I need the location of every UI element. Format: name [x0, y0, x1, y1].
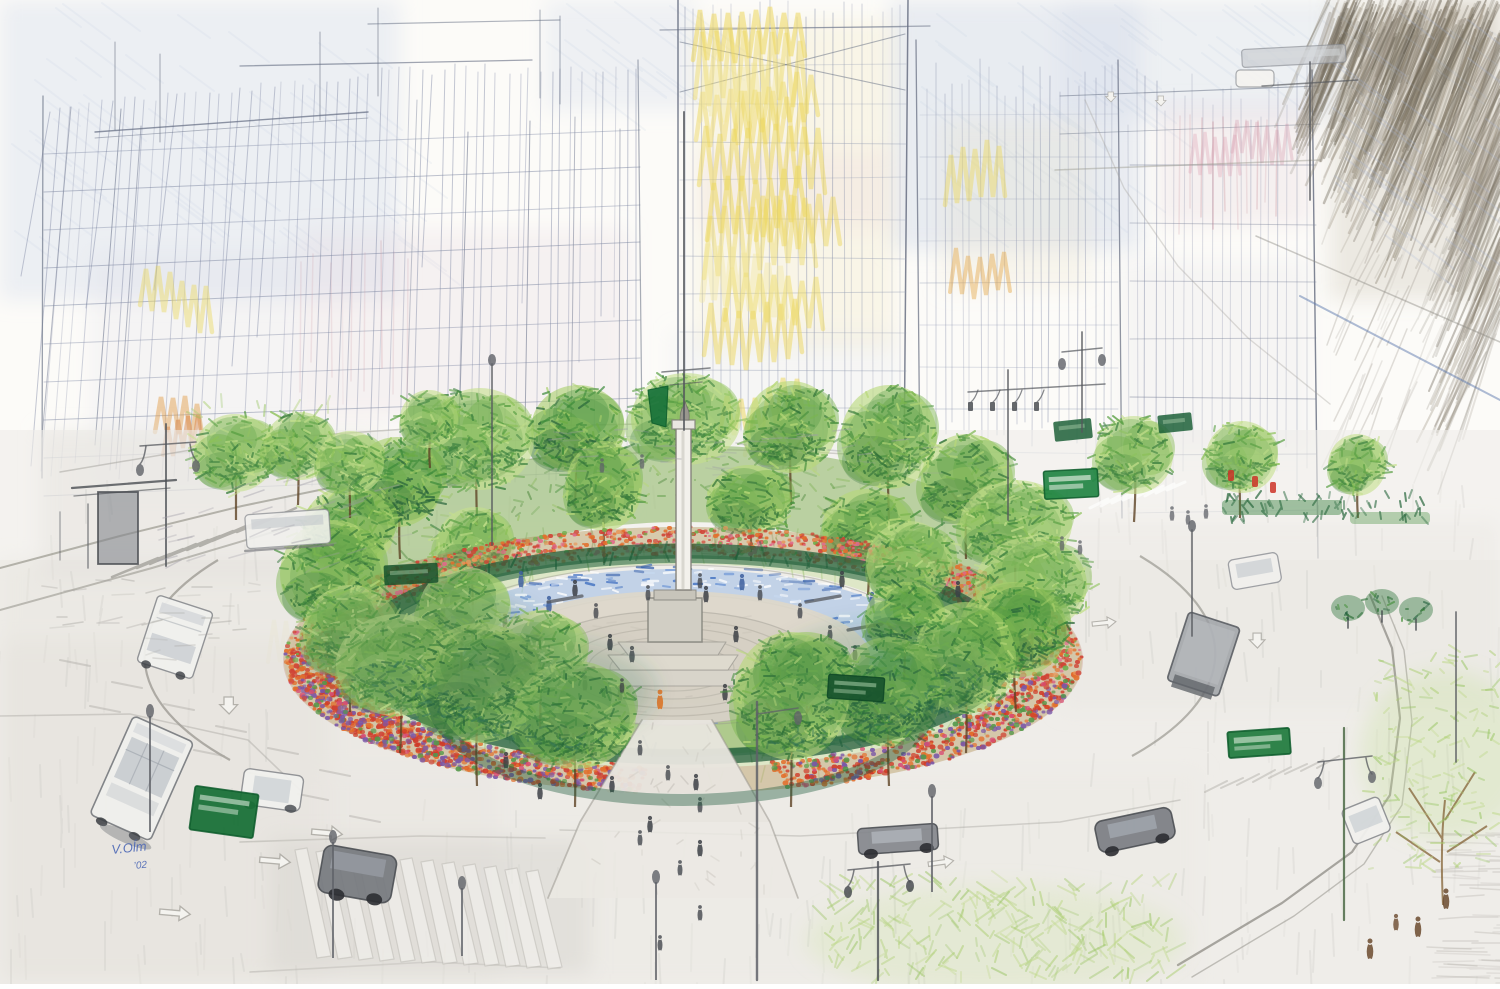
svg-text:’02: ’02 [133, 860, 148, 872]
